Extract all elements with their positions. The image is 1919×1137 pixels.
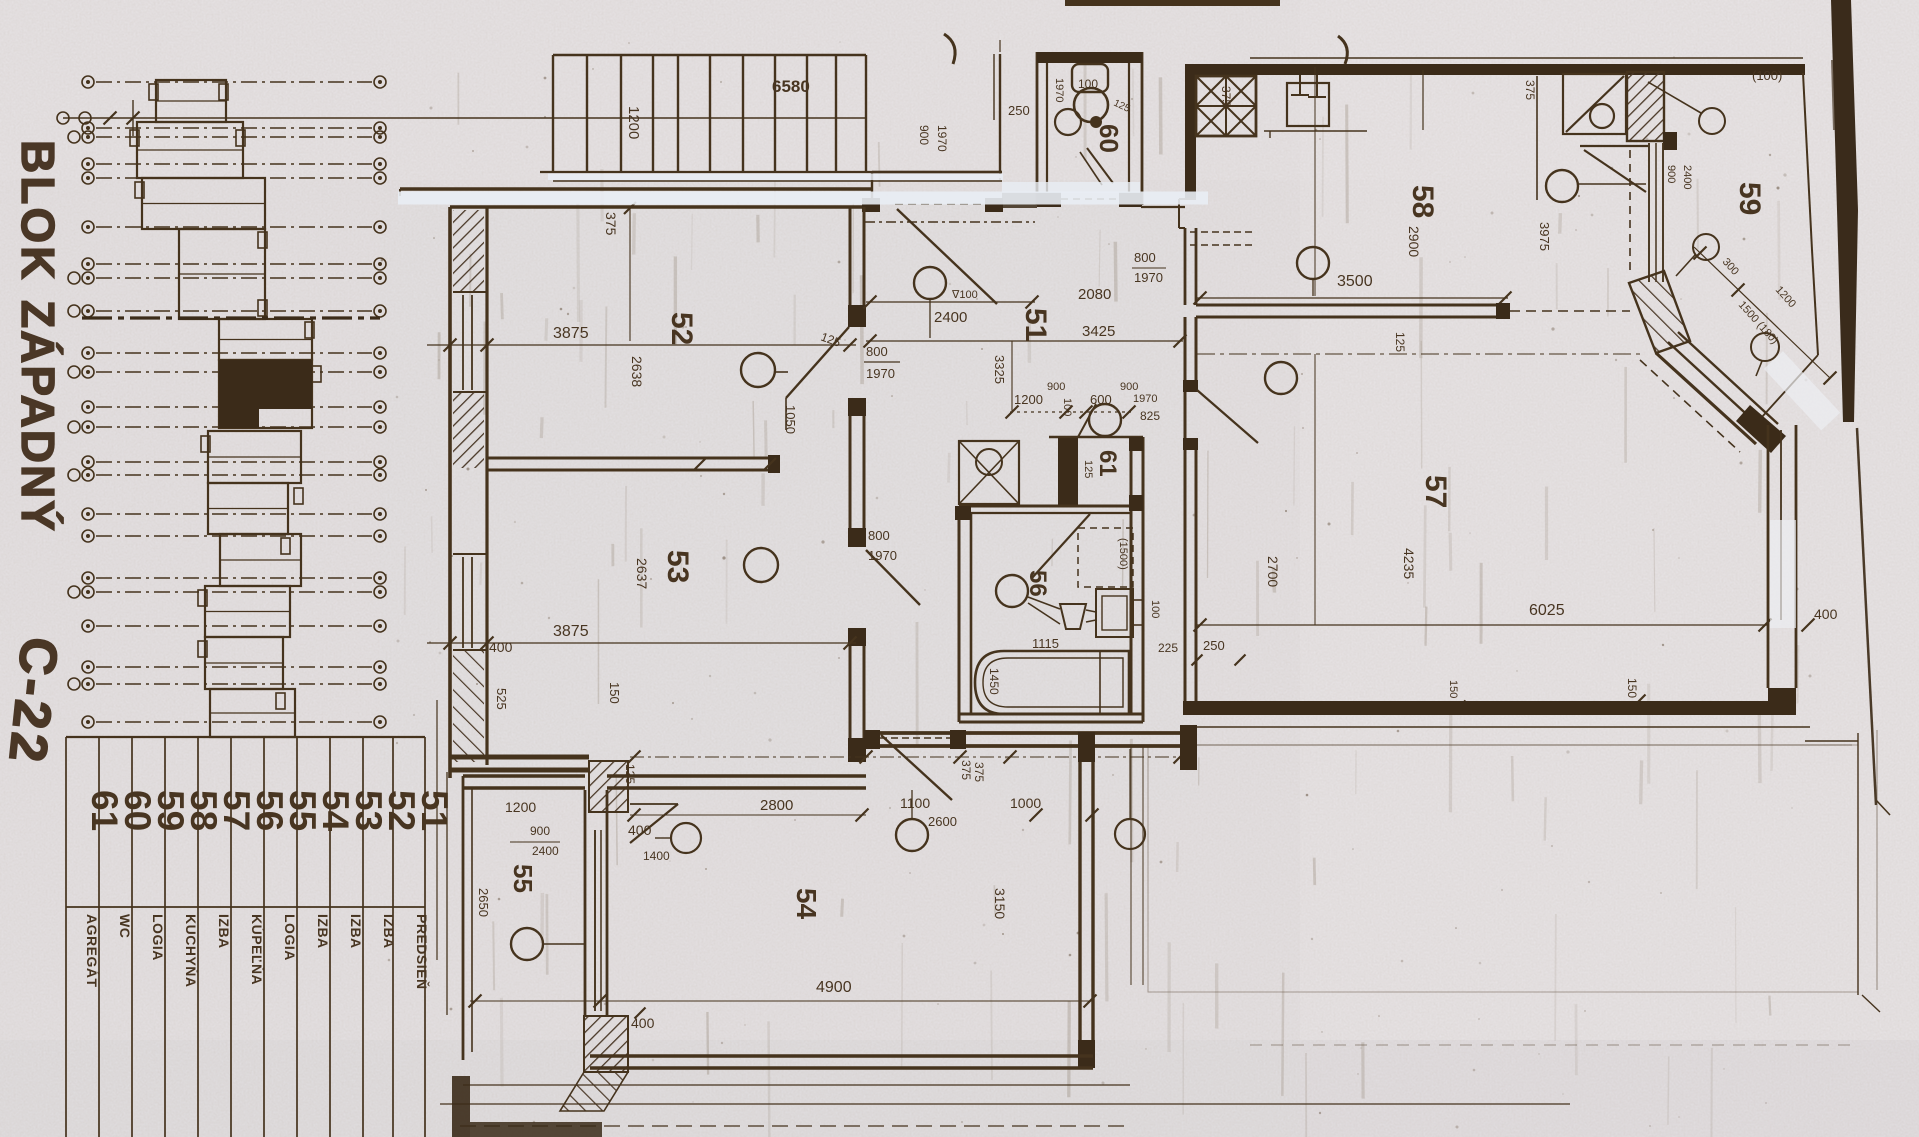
svg-text:2400: 2400 [1681, 165, 1693, 189]
svg-text:150: 150 [1625, 678, 1639, 698]
svg-text:61: 61 [1094, 450, 1121, 477]
svg-text:2638: 2638 [629, 356, 645, 387]
svg-text:100: 100 [1149, 600, 1161, 618]
svg-text:900: 900 [1665, 165, 1677, 183]
svg-text:51: 51 [414, 790, 455, 831]
svg-text:800: 800 [1134, 250, 1156, 265]
svg-text:375: 375 [1523, 80, 1537, 100]
svg-text:2650: 2650 [476, 888, 491, 917]
svg-text:900: 900 [1120, 381, 1138, 393]
svg-text:KUCHYŇA: KUCHYŇA [183, 914, 200, 988]
svg-text:250: 250 [1008, 103, 1030, 118]
svg-text:1050: 1050 [783, 405, 798, 434]
svg-text:150: 150 [607, 682, 622, 704]
svg-text:1970: 1970 [1134, 270, 1163, 285]
svg-text:6025: 6025 [1529, 602, 1565, 619]
svg-text:LOGIA: LOGIA [282, 914, 298, 961]
svg-text:52: 52 [665, 312, 698, 345]
svg-text:KÚPEĽŇA: KÚPEĽŇA [249, 914, 266, 985]
svg-text:100: 100 [1061, 398, 1073, 416]
svg-text:1100: 1100 [900, 795, 930, 811]
svg-text:3875: 3875 [553, 623, 589, 640]
svg-text:800: 800 [868, 528, 890, 543]
svg-text:3975: 3975 [1537, 222, 1552, 251]
svg-text:6580: 6580 [772, 77, 810, 96]
svg-text:375: 375 [1219, 86, 1233, 106]
svg-text:AGREGÁT: AGREGÁT [84, 914, 100, 988]
svg-text:900: 900 [917, 125, 931, 145]
svg-text:125: 125 [623, 764, 637, 784]
svg-text:2800: 2800 [760, 797, 793, 814]
svg-text:3425: 3425 [1082, 323, 1115, 340]
svg-text:60: 60 [1094, 124, 1124, 153]
svg-text:125: 125 [1393, 332, 1407, 352]
svg-text:BLOK: BLOK [12, 140, 64, 282]
svg-text:IZBA: IZBA [216, 914, 232, 949]
svg-text:375: 375 [972, 762, 986, 782]
svg-text:51: 51 [1019, 308, 1052, 341]
svg-text:900: 900 [1047, 381, 1065, 393]
svg-text:1200: 1200 [625, 106, 642, 139]
svg-text:1970: 1970 [1133, 393, 1157, 405]
svg-text:PREDSIEŇ: PREDSIEŇ [414, 914, 431, 990]
svg-text:1970: 1970 [866, 366, 895, 381]
svg-text:525: 525 [494, 688, 509, 710]
svg-text:IZBA: IZBA [348, 914, 364, 949]
svg-text:54: 54 [791, 888, 822, 920]
svg-text:1400: 1400 [643, 849, 670, 863]
svg-text:1970: 1970 [935, 125, 949, 152]
svg-text:1450: 1450 [987, 668, 1001, 695]
svg-text:57: 57 [1419, 475, 1452, 508]
svg-text:2400: 2400 [934, 309, 967, 326]
svg-text:2600: 2600 [928, 814, 957, 829]
svg-text:3500: 3500 [1337, 273, 1373, 290]
svg-text:LOGIA: LOGIA [150, 914, 166, 961]
svg-text:(1500): (1500) [1117, 538, 1129, 570]
svg-text:3150: 3150 [992, 888, 1008, 919]
svg-text:1970: 1970 [1053, 78, 1065, 102]
svg-text:2400: 2400 [532, 844, 559, 858]
svg-text:2700: 2700 [1265, 556, 1281, 587]
svg-text:58: 58 [1406, 185, 1439, 218]
svg-text:4900: 4900 [816, 979, 852, 996]
svg-text:125: 125 [1082, 460, 1094, 478]
svg-text:825: 825 [1140, 409, 1160, 423]
svg-text:1115: 1115 [1032, 636, 1059, 651]
svg-text:ZÁPADNÝ: ZÁPADNÝ [12, 300, 64, 533]
svg-text:1970: 1970 [868, 548, 897, 563]
svg-text:∇100: ∇100 [951, 289, 978, 301]
svg-text:100: 100 [1078, 77, 1098, 91]
svg-text:IZBA: IZBA [315, 914, 331, 949]
svg-text:4235: 4235 [1401, 548, 1417, 579]
svg-text:WC: WC [117, 914, 133, 938]
svg-text:800: 800 [866, 344, 888, 359]
svg-text:2637: 2637 [634, 558, 650, 589]
svg-text:900: 900 [530, 824, 550, 838]
svg-text:2080: 2080 [1078, 286, 1111, 303]
svg-text:55: 55 [508, 864, 538, 893]
svg-text:56: 56 [1024, 570, 1051, 597]
svg-text:150: 150 [1447, 680, 1459, 698]
svg-text:1000: 1000 [1010, 795, 1041, 811]
svg-text:225: 225 [1158, 641, 1178, 655]
svg-text:1200: 1200 [505, 799, 536, 815]
svg-text:1200: 1200 [1014, 392, 1043, 407]
svg-text:3325: 3325 [992, 355, 1007, 384]
svg-text:IZBA: IZBA [381, 914, 397, 949]
svg-text:250: 250 [1203, 638, 1225, 653]
svg-text:375: 375 [959, 760, 973, 780]
svg-text:53: 53 [661, 550, 694, 583]
svg-text:400: 400 [1814, 606, 1838, 622]
svg-text:3875: 3875 [553, 325, 589, 342]
svg-text:(100): (100) [1752, 68, 1782, 83]
svg-text:59: 59 [1733, 182, 1766, 215]
svg-text:400: 400 [489, 639, 513, 655]
svg-text:2900: 2900 [1406, 226, 1422, 257]
svg-text:375: 375 [603, 212, 619, 236]
